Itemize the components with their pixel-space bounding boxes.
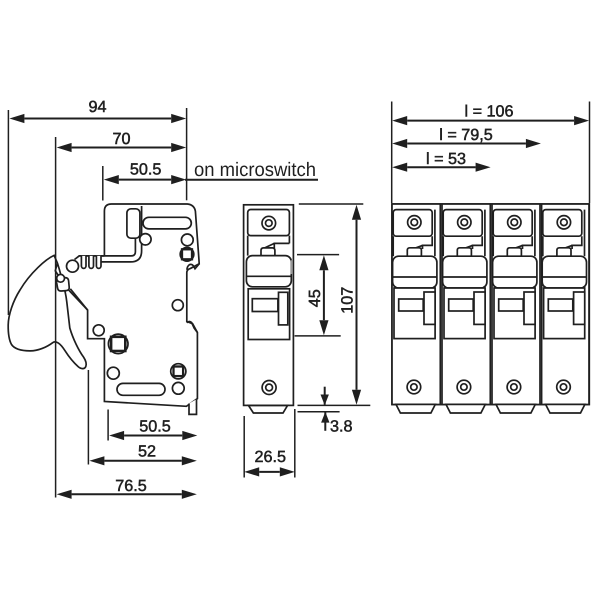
svg-text:l = 106: l = 106 xyxy=(464,103,513,121)
svg-text:l = 79,5: l = 79,5 xyxy=(439,126,493,144)
svg-text:94: 94 xyxy=(88,98,106,116)
svg-text:52: 52 xyxy=(138,443,156,461)
svg-text:50.5: 50.5 xyxy=(139,418,171,436)
svg-text:45: 45 xyxy=(306,289,324,307)
svg-text:3.8: 3.8 xyxy=(330,418,353,436)
svg-text:70: 70 xyxy=(112,130,130,148)
svg-text:26.5: 26.5 xyxy=(255,448,287,466)
svg-text:76.5: 76.5 xyxy=(115,477,147,495)
svg-text:l = 53: l = 53 xyxy=(426,150,466,168)
svg-text:on microswitch: on microswitch xyxy=(194,159,316,181)
svg-text:107: 107 xyxy=(338,287,356,314)
svg-text:50.5: 50.5 xyxy=(130,161,162,179)
